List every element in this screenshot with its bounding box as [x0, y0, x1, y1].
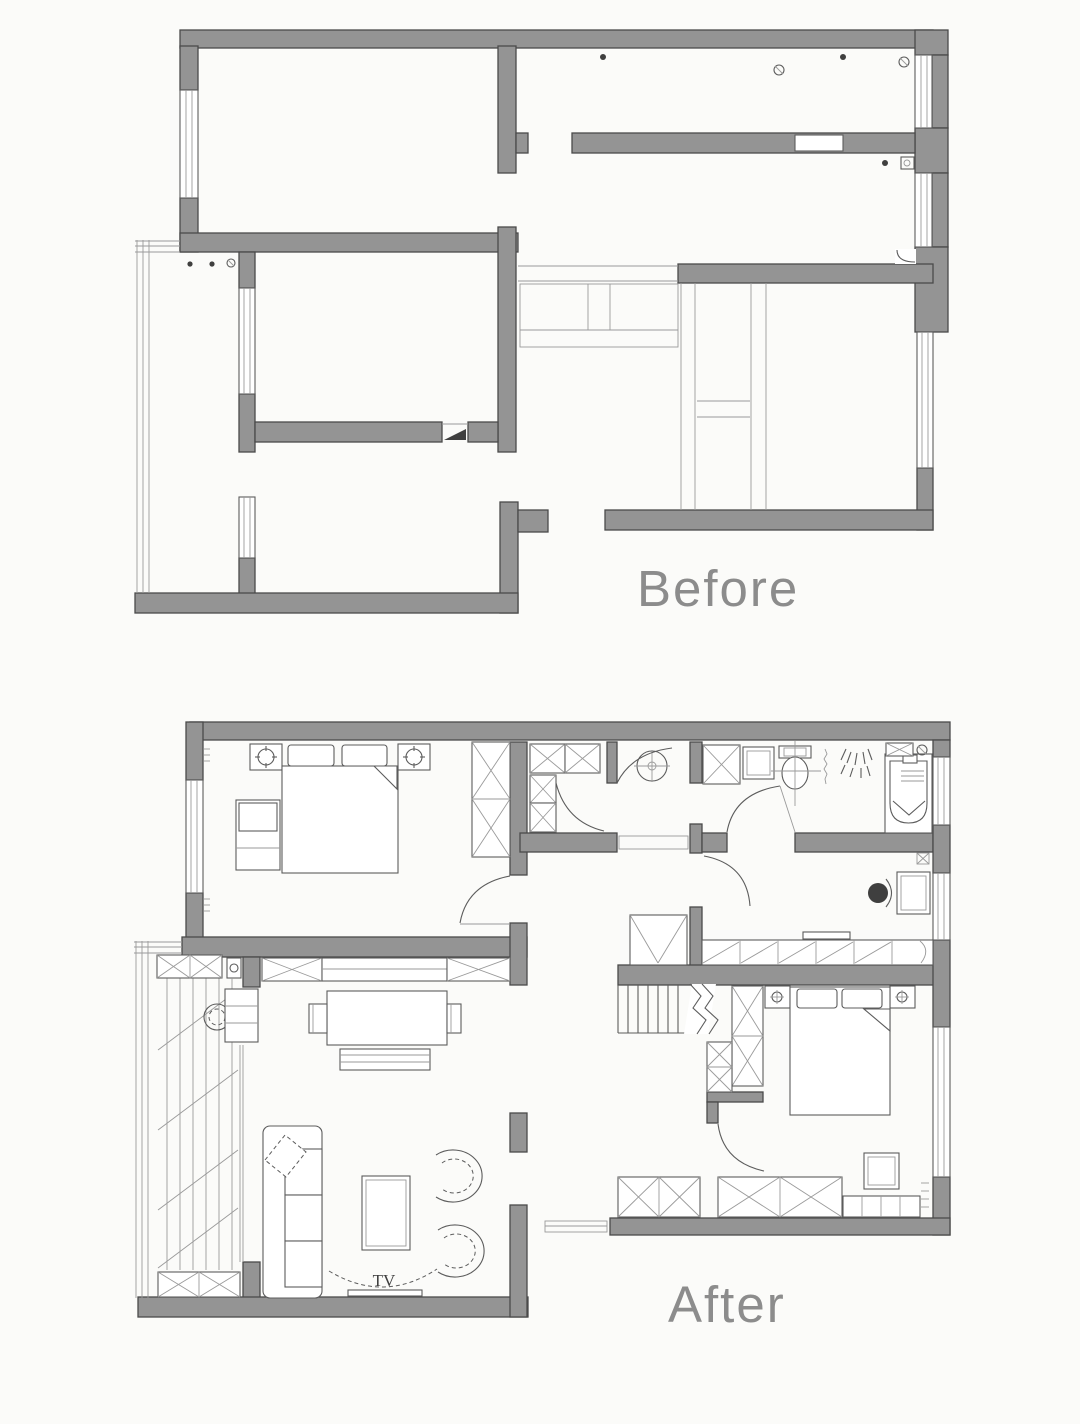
balcony-shelf: [225, 989, 258, 1042]
removed-wall-line: [240, 1045, 243, 1262]
staircase: [618, 984, 718, 1034]
balcony-cabinet-bottom: [158, 1272, 240, 1297]
before-window-right-2: [915, 173, 932, 247]
nightstand-right: [398, 744, 430, 770]
before-window-partition-1: [239, 288, 255, 394]
master-door-swing: [460, 876, 510, 924]
bottom-wardrobe: [718, 1177, 842, 1217]
before-window-partition-2: [239, 497, 255, 558]
dining-table: [309, 991, 461, 1045]
after-window-bathroom: [933, 757, 950, 825]
before-window-right-1: [915, 55, 932, 128]
hall-closets: [530, 744, 600, 832]
after-plan: TV: [134, 722, 950, 1333]
after-window-bedroom2: [933, 1027, 950, 1177]
floorplan-canvas: Before: [0, 0, 1080, 1424]
cased-opening: [619, 836, 688, 849]
before-balcony-glazing: [135, 240, 180, 593]
nightstand-left: [250, 744, 282, 770]
master-bedroom: [204, 742, 510, 924]
study-room: [630, 853, 933, 965]
balcony-cabinet-top: [157, 955, 222, 978]
tv-label: TV: [373, 1271, 396, 1290]
desk: [897, 872, 930, 914]
cabinet-icon: [630, 915, 687, 965]
nightstand-right: [890, 986, 915, 1008]
after-window-master: [186, 780, 203, 893]
nightstand-left: [765, 986, 790, 1008]
bedroom-bench: [236, 800, 280, 870]
drawer-unit: [843, 1196, 920, 1217]
entry-threshold: [545, 1221, 607, 1232]
wall-cabinets: [227, 958, 510, 981]
before-label: Before: [637, 560, 799, 617]
hall-door-arc-1: [556, 783, 604, 831]
tall-wardrobe: [732, 986, 763, 1086]
armchair-1: [436, 1150, 482, 1202]
shower-head-icon: [841, 749, 872, 778]
small-cabinet: [707, 1042, 732, 1092]
floorplan-comparison-image: Before: [0, 0, 1080, 1424]
bathtub-icon: [885, 754, 932, 833]
master-wardrobe: [472, 742, 510, 857]
study-door-arc: [704, 856, 750, 906]
shoe-cabinet: [618, 1177, 700, 1217]
dimension-ticks: [204, 749, 210, 911]
before-pass-through: [795, 135, 843, 151]
small-desk: [864, 1153, 899, 1189]
sliding-wardrobe: [702, 932, 933, 965]
bedroom-door-arc: [718, 1124, 764, 1171]
bathroom: [703, 741, 932, 833]
window-mark: [917, 853, 929, 864]
before-plan: Before: [135, 30, 948, 617]
washing-machine-icon: [703, 745, 740, 784]
before-partition-lines: [518, 266, 766, 510]
living-room: TV: [227, 958, 510, 1298]
tv-stand: [348, 1290, 422, 1296]
washbasin-icon: [634, 750, 670, 782]
bathroom-door-swing: [727, 786, 795, 832]
before-window-left: [180, 90, 198, 198]
after-window-study: [933, 873, 950, 940]
desk-chair: [868, 879, 892, 907]
after-balcony-glazing: [134, 941, 182, 1298]
dimension-ticks: [921, 1183, 929, 1207]
before-walls: [135, 30, 948, 613]
toilet-icon: [771, 741, 821, 806]
armchair-2: [438, 1225, 484, 1277]
after-label: After: [668, 1276, 786, 1333]
tv-zone: TV: [329, 1269, 437, 1296]
sofa: [263, 1126, 322, 1298]
bed: [790, 987, 890, 1115]
coffee-table: [362, 1176, 410, 1250]
shower-cabinet: [743, 747, 774, 779]
dimension-squiggle: [824, 749, 827, 784]
bench: [340, 1049, 430, 1070]
balcony: [157, 955, 258, 1297]
master-bed: [282, 745, 398, 873]
before-window-right-3: [917, 332, 933, 468]
